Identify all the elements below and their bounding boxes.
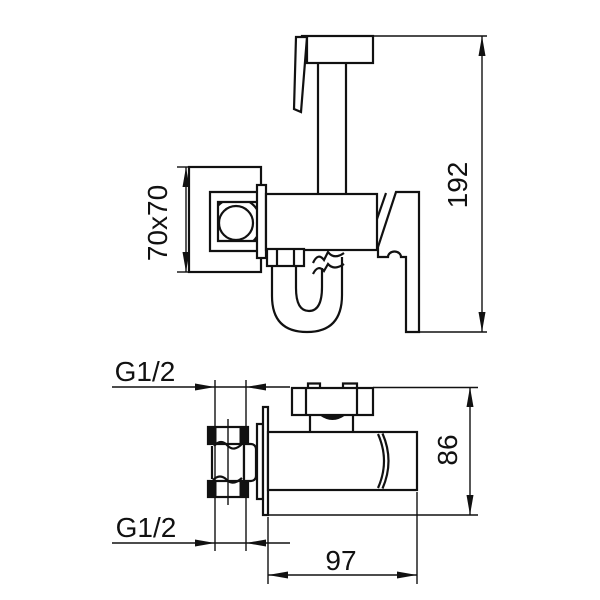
hose-inner (296, 266, 322, 311)
arrowhead-up (479, 36, 486, 56)
hose-break-line (313, 252, 344, 263)
thread-hatch (208, 427, 216, 444)
hose-outer (272, 257, 342, 332)
arrowhead-right (195, 384, 215, 391)
arrowhead-left (246, 540, 266, 547)
dim-label-70x70: 70x70 (142, 185, 173, 261)
handle-pivot-line (377, 193, 386, 219)
arrowhead-up (467, 387, 474, 407)
dim-label-192: 192 (442, 162, 473, 209)
dimension-g12-bottom: G1/2 (112, 512, 290, 547)
dim-label-g12-top: G1/2 (115, 356, 176, 387)
dimension-70x70: 70x70 (142, 167, 190, 272)
arrowhead-left (268, 572, 288, 579)
arrowhead-down (467, 495, 474, 515)
arrowhead-right (397, 572, 417, 579)
holder-hub (219, 206, 253, 240)
dimension-97: 97 (268, 492, 417, 584)
holder-bracket-plan (292, 388, 373, 415)
hose-nut (267, 249, 304, 266)
dimension-192: 192 (442, 36, 486, 332)
thread-hatch (208, 481, 216, 497)
thread-hatch (240, 481, 248, 497)
plate-flange (257, 185, 266, 258)
valve-body (266, 194, 377, 250)
spray-head (302, 36, 373, 63)
valve-body-plan (268, 432, 417, 490)
hose-break-line (313, 264, 344, 274)
bidet-sprayer-drawing: 192 70x70 (0, 0, 600, 600)
dim-label-97: 97 (325, 545, 356, 576)
plan-view (208, 380, 417, 551)
thread-hatch (240, 427, 248, 444)
trigger-lever (294, 37, 307, 112)
arrowhead-left (246, 384, 266, 391)
pipe-connector (244, 444, 256, 481)
technical-drawing-page: 192 70x70 (0, 0, 600, 600)
dim-label-g12-bottom: G1/2 (116, 512, 177, 543)
handle-lever (378, 192, 419, 332)
arrowhead-right (195, 540, 215, 547)
dim-label-86: 86 (432, 434, 463, 465)
arrowhead-down (479, 312, 486, 332)
holder-notch (320, 415, 345, 420)
dimension-g12-top: G1/2 (112, 356, 290, 391)
